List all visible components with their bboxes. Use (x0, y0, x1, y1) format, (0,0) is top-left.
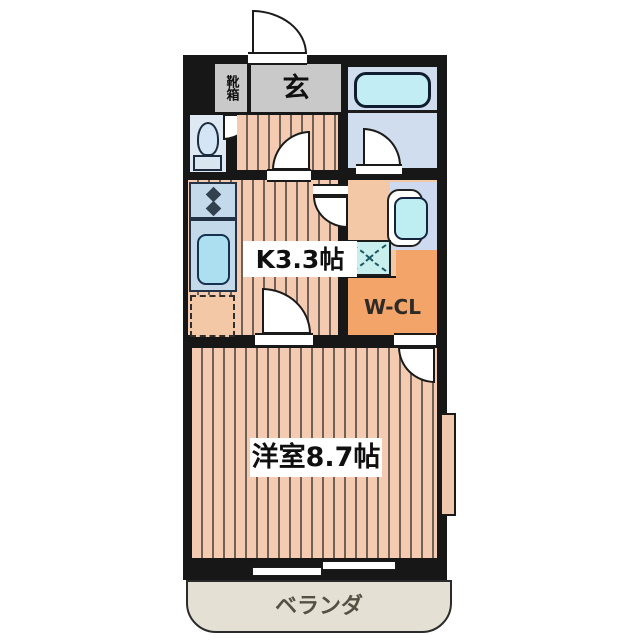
entrance-label: 玄 (283, 75, 310, 102)
stove-burners-icon (189, 182, 237, 219)
western-room-size-label-box: 洋室8.7帖 (250, 438, 382, 477)
front-door-swing-icon (252, 10, 307, 54)
walk-in-closet: W-CL (348, 278, 437, 335)
kitchen-room-door-threshold (255, 333, 313, 347)
walk-in-closet-bump (396, 250, 437, 278)
kitchen-size-label: K3.3帖 (256, 247, 345, 272)
side-window-icon (440, 413, 456, 516)
washbasin-icon (394, 197, 428, 240)
floor-plan: 靴箱 玄 (0, 0, 640, 640)
shoe-cabinet-label: 靴箱 (225, 75, 238, 101)
sliding-window-icon (252, 567, 322, 576)
veranda: ベランダ (186, 580, 452, 633)
bathtub-icon (354, 72, 431, 108)
entrance-hall: 玄 (251, 64, 341, 112)
bathroom-divider (348, 110, 437, 113)
kitchen-size-label-box: K3.3帖 (243, 241, 357, 277)
western-room-size-label: 洋室8.7帖 (252, 444, 381, 471)
shoe-cabinet: 靴箱 (215, 64, 247, 112)
walk-in-closet-label: W-CL (364, 297, 421, 317)
toilet-icon (197, 122, 219, 156)
kitchen-sink-icon (197, 234, 230, 285)
sliding-window-icon (322, 561, 396, 570)
powder-room-door-threshold (313, 184, 348, 196)
closet-door-threshold (394, 333, 436, 347)
veranda-label: ベランダ (275, 596, 363, 618)
corridor-kitchen-door-threshold (267, 169, 311, 182)
refrigerator-outline-icon (190, 295, 235, 337)
toilet-tank-icon (193, 155, 222, 171)
